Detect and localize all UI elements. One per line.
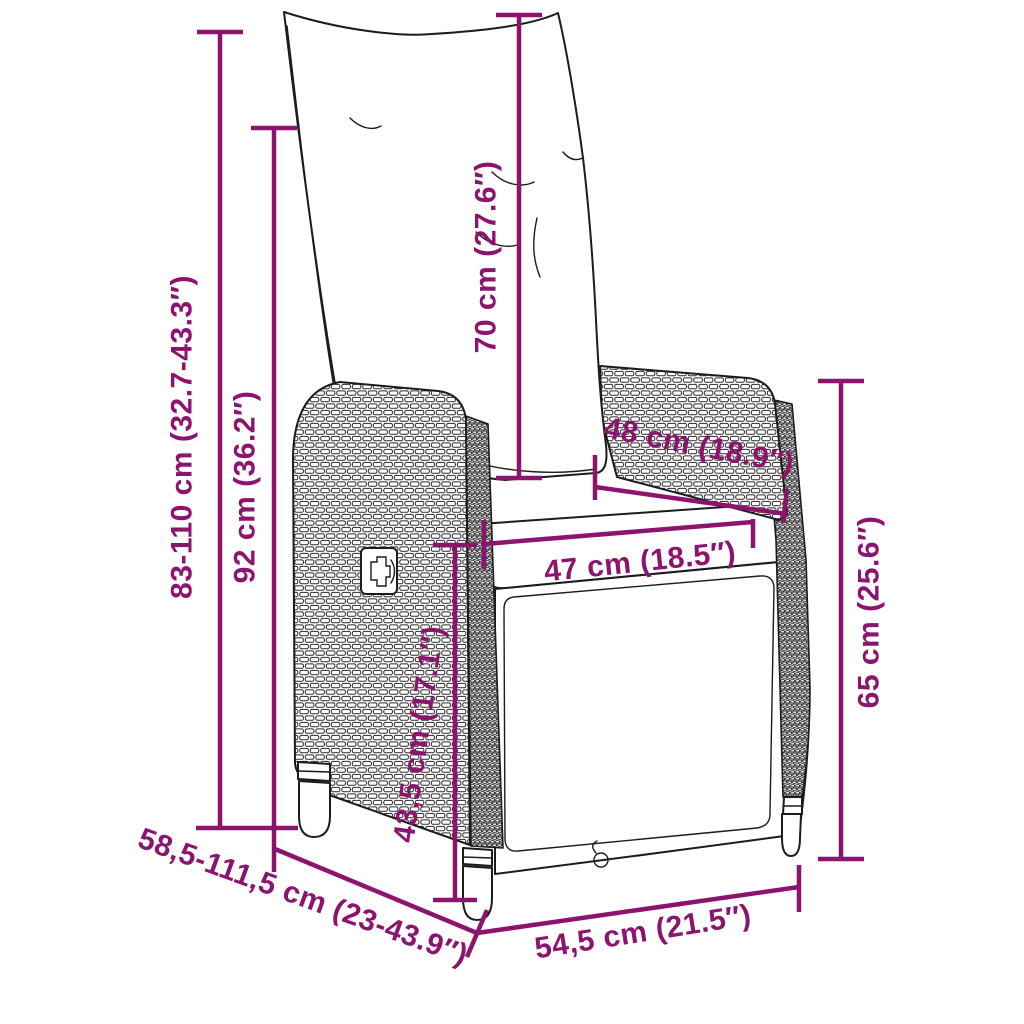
front-right-foot bbox=[782, 797, 802, 856]
dim-backrest-height-label: 92 cm (36.2″) bbox=[229, 391, 262, 584]
front-left-foot bbox=[463, 848, 492, 920]
dim-overall-height-label: 83-110 cm (32.7-43.3″) bbox=[166, 275, 199, 599]
product-dimension-diagram: 83-110 cm (32.7-43.3″) 92 cm (36.2″) 70 … bbox=[0, 0, 1024, 1024]
recline-handle bbox=[361, 548, 397, 594]
dimension-diagram-canvas: 83-110 cm (32.7-43.3″) 92 cm (36.2″) 70 … bbox=[0, 0, 1024, 1024]
dim-overall-depth-label: 58,5-111,5 cm (23-43.9″) bbox=[134, 822, 473, 972]
rear-left-foot bbox=[298, 762, 330, 837]
dim-armrest-height-label: 65 cm (25.6″) bbox=[853, 516, 886, 709]
dim-back-cushion-label: 70 cm (27.6″) bbox=[470, 161, 503, 354]
